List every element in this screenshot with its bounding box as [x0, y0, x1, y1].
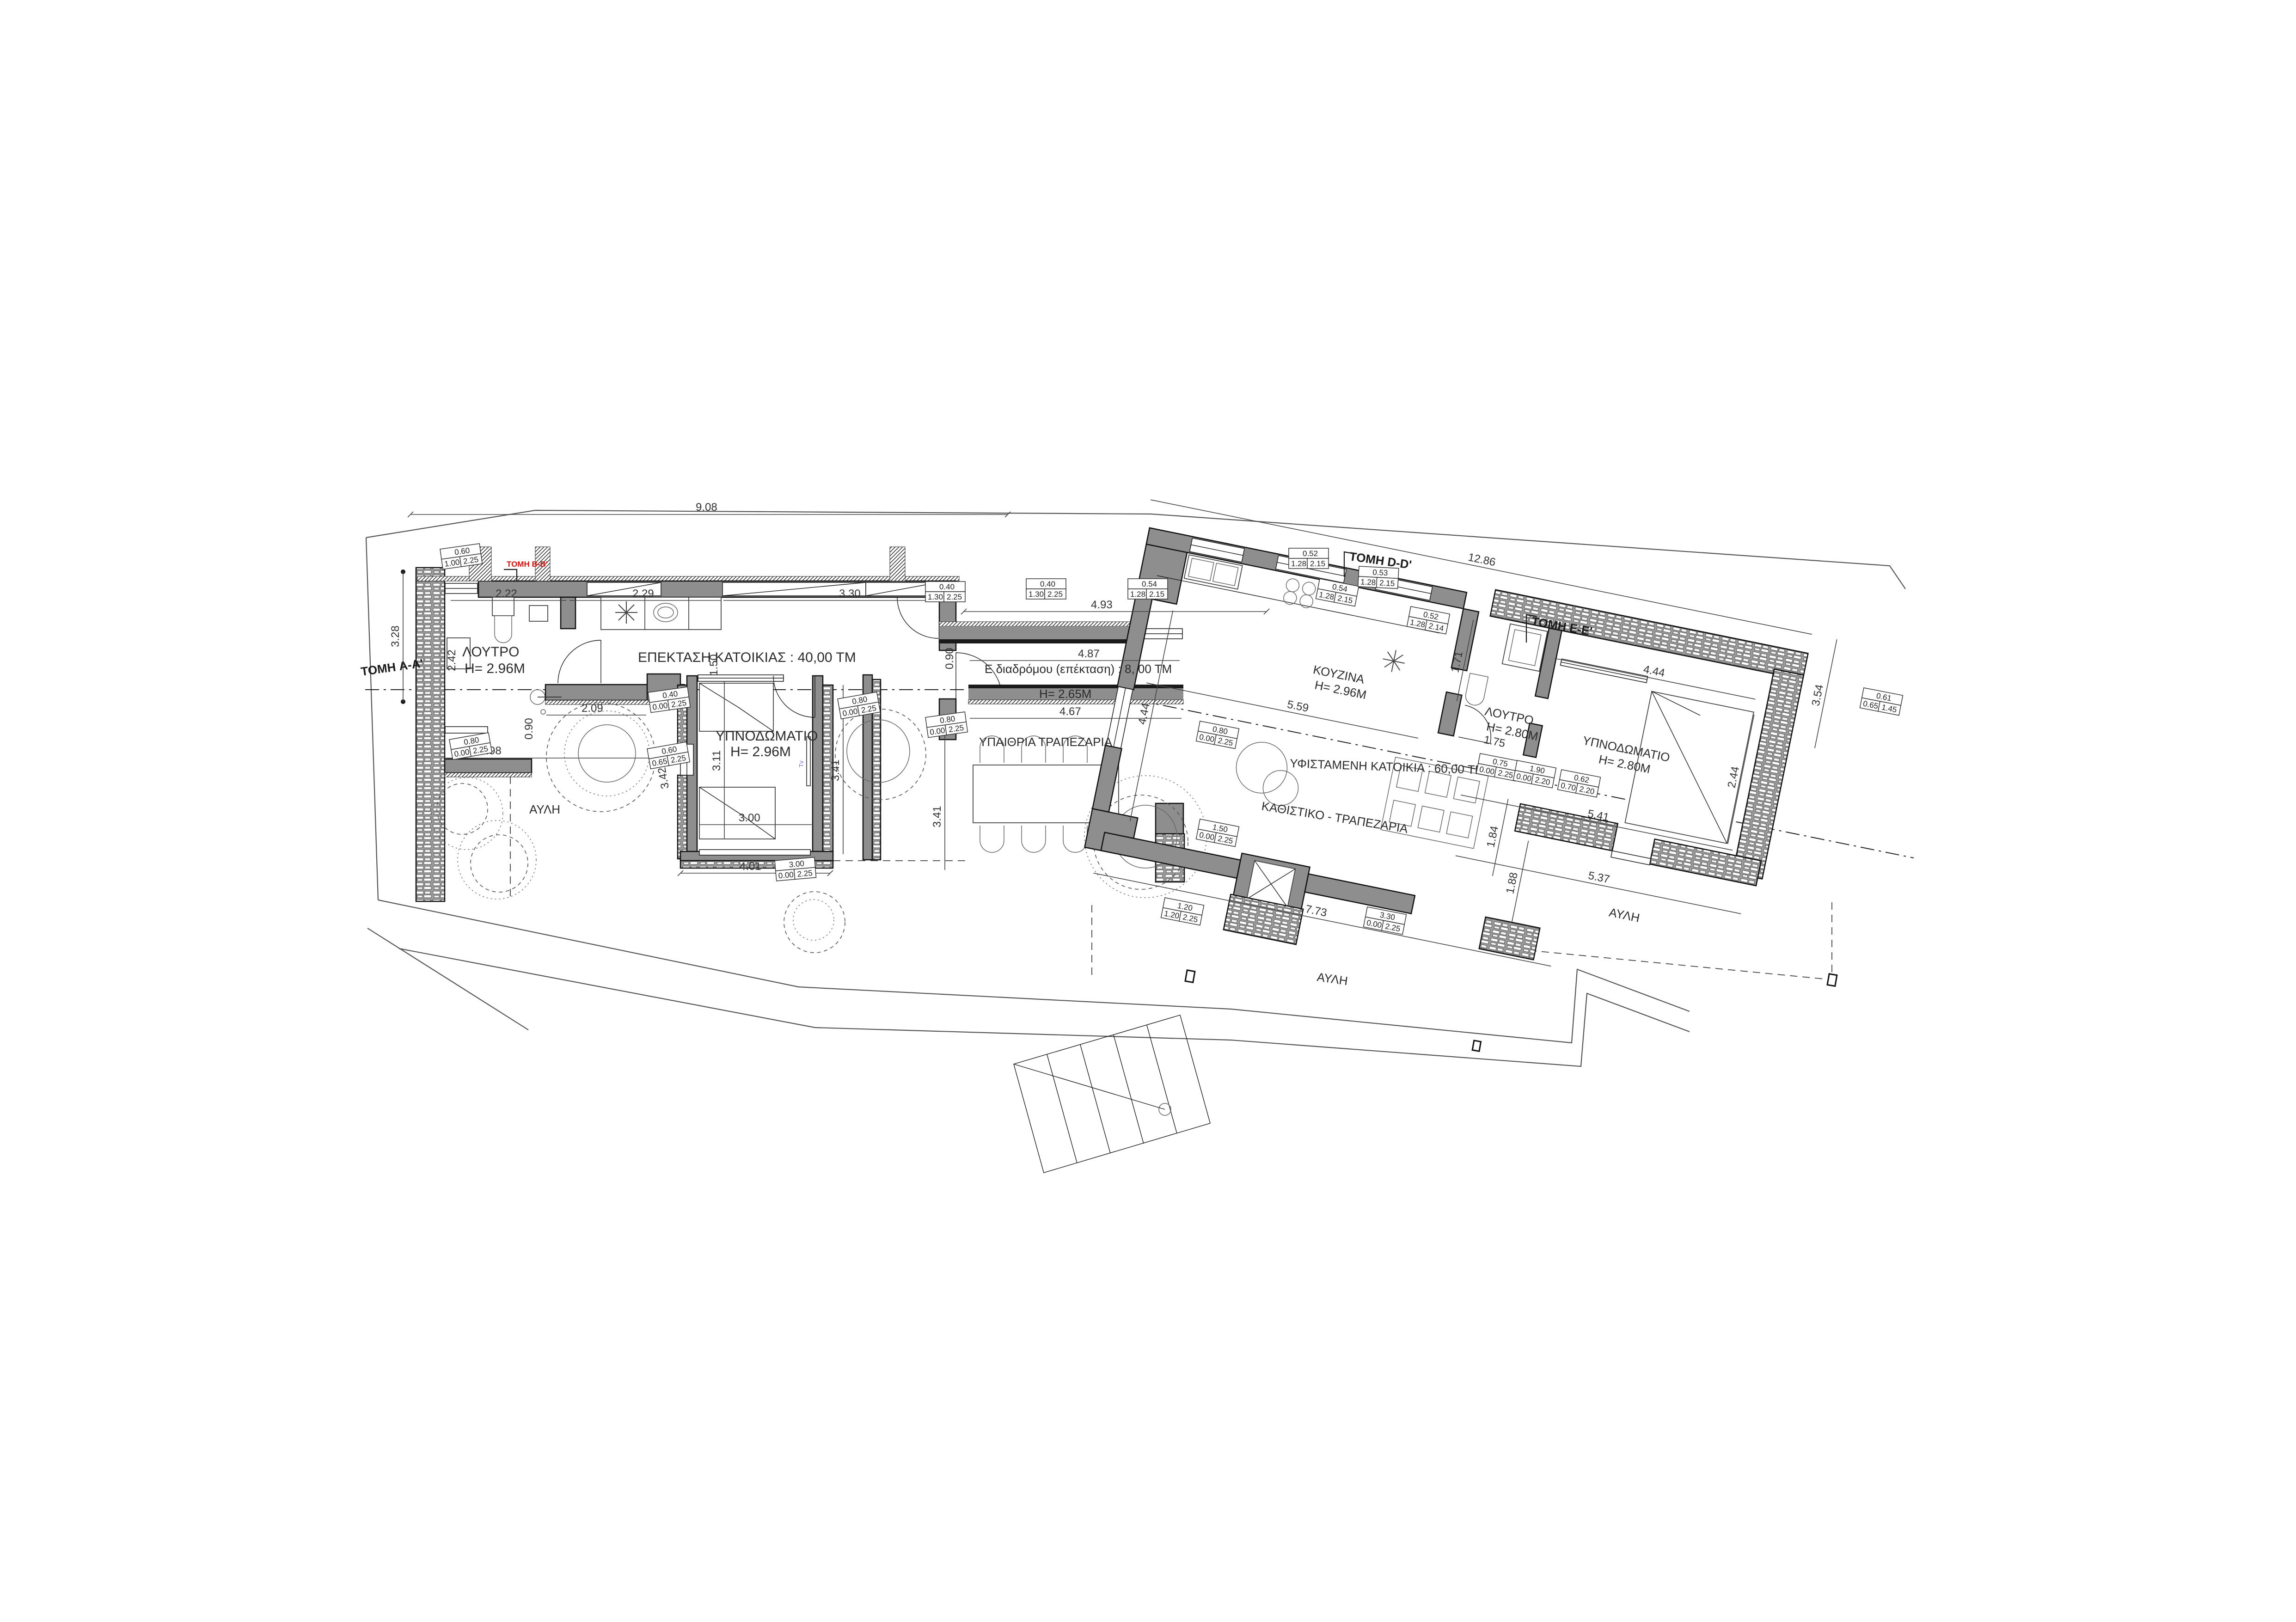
room-loutro-left-h: Η= 2.96Μ	[465, 661, 525, 676]
dim-total-right: 12.86	[1467, 551, 1497, 569]
tag-box: 0.620.702.20	[1558, 770, 1601, 797]
toilet	[492, 597, 514, 643]
svg-text:0.00: 0.00	[778, 870, 794, 881]
tag-box: 1.900.002.20	[1513, 760, 1556, 788]
svg-text:0.52: 0.52	[1303, 549, 1318, 558]
dim-kitchen-w: 2.29	[632, 588, 654, 600]
sofa	[1230, 738, 1306, 809]
svg-text:2.15: 2.15	[1379, 578, 1395, 588]
survey-marker	[1827, 974, 1837, 986]
svg-text:0.40: 0.40	[939, 582, 955, 591]
dim-bath-low: 2.09	[582, 702, 603, 715]
court-wall	[445, 759, 532, 773]
svg-text:1.30: 1.30	[928, 593, 943, 601]
svg-text:1.28: 1.28	[1291, 559, 1306, 568]
pier	[890, 547, 905, 581]
cooktop-icon	[615, 601, 637, 624]
dim-bath-w: 2.22	[496, 588, 517, 600]
room-existing: ΥΦΙΣΤΑΜΕΝΗ ΚΑΤΟΙΚΙΑ : 60,00 ΤΜ	[1290, 756, 1485, 777]
dim-corr-in: 4.87	[1078, 648, 1100, 660]
bedroom-wall-east	[813, 676, 823, 857]
svg-text:3.00: 3.00	[789, 859, 805, 869]
section-bb: ΤΟΜΗ Β-Β'	[507, 560, 548, 569]
chair	[1022, 826, 1046, 852]
tag-box: 0.401.302.25	[925, 581, 965, 602]
dim-side-a: 3.41	[829, 759, 842, 781]
bed	[699, 787, 775, 839]
tv-label: Tv	[798, 760, 805, 767]
dim-bed-l-total: 4.01	[740, 860, 761, 873]
tag-box: 0.401.302.25	[1026, 579, 1066, 599]
dim-bath-d: 2.42	[446, 649, 458, 671]
door-bath	[558, 640, 601, 683]
section-aa: ΤΟΜΗ A-A'	[360, 656, 424, 679]
dim-bed-l-h: 3.11	[710, 750, 723, 771]
tag-box: 0.750.002.25	[1476, 753, 1519, 781]
dim-corr-low: 4.67	[1059, 705, 1081, 718]
room-extension: ΕΠΕΚΤΑΣΗ ΚΑΤΟΙΚΙΑΣ : 40,00 ΤΜ	[638, 650, 856, 665]
tag-box: 0.541.282.15	[1128, 579, 1168, 599]
court-gate-wall	[1156, 803, 1184, 882]
svg-text:1.30: 1.30	[1029, 590, 1044, 599]
door-bedroom	[773, 676, 815, 717]
dim-hall: 1.50	[708, 654, 720, 676]
bed	[699, 683, 773, 731]
svg-text:0.54: 0.54	[1142, 580, 1157, 588]
bath-shelf	[529, 606, 548, 621]
svg-text:2.25: 2.25	[1047, 590, 1063, 599]
room-bedroom-left: ΥΠΝΟΔΩΜΑΤΙΟ	[716, 728, 818, 744]
chair	[980, 826, 1004, 852]
svg-text:0.53: 0.53	[1372, 568, 1388, 578]
dim-court-door: 0.90	[523, 718, 535, 740]
floor-plan-drawing: Tv	[0, 0, 2296, 1622]
room-bedroom-left-h: Η= 2.96Μ	[730, 744, 791, 759]
court-bottom-label: ΑΥΛΗ	[1316, 970, 1348, 988]
boiler-icon	[1381, 648, 1407, 674]
dim-side-b: 3.41	[931, 806, 943, 827]
svg-text:0.40: 0.40	[1040, 580, 1055, 588]
shower	[1502, 624, 1548, 672]
wall-bath-partition	[561, 597, 576, 629]
room-outdoor-dining: ΥΠΑΙΘΡΙΑ ΤΡΑΠΕΖΑΡΙΑ	[979, 735, 1113, 749]
dim-top: 9.08	[696, 501, 717, 514]
dim-left-h: 3.28	[389, 625, 402, 647]
tag-box: 0.531.282.15	[1358, 566, 1399, 588]
tag-box: 0.610.651.45	[1860, 688, 1903, 716]
survey-marker	[1185, 970, 1195, 983]
tag-box: 0.800.002.25	[925, 712, 967, 738]
dim-side-c: 3.42	[655, 766, 672, 790]
chair	[1063, 826, 1087, 852]
tag-box: 1.500.002.25	[1196, 819, 1239, 847]
tag-box: 0.521.282.14	[1407, 606, 1450, 634]
tag-box: 0.800.002.25	[1196, 721, 1239, 749]
svg-text:1.28: 1.28	[1360, 577, 1376, 587]
tag-box: 3.000.002.25	[775, 857, 816, 881]
tag-box: 0.521.282.15	[1289, 548, 1329, 569]
tv-unit	[807, 737, 810, 786]
room-loutro-left: ΛΟΥΤΡΟ	[462, 644, 519, 660]
room-corridor: Ε διαδρόμου (επέκταση) : 8, 00 ΤΜ	[985, 662, 1172, 676]
stone-wall-east-r	[1733, 669, 1803, 879]
survey-marker	[1472, 1041, 1481, 1051]
svg-text:1.28: 1.28	[1130, 590, 1145, 599]
dim-corr-top: 4.93	[1091, 599, 1113, 611]
dim-bed-l-w: 3.00	[739, 812, 760, 824]
svg-text:2.15: 2.15	[1310, 559, 1325, 568]
floor-plan-page: { "accent_colors": {"wall_gray": "#8e8e8…	[0, 0, 2296, 1622]
room-living: ΚΑΘΙΣΤΙΚΟ - ΤΡΑΠΕΖΑΡΙΑ	[1261, 799, 1409, 836]
kitchen-counter	[601, 597, 721, 630]
svg-text:2.15: 2.15	[1149, 590, 1164, 599]
svg-text:2.25: 2.25	[947, 593, 962, 601]
toilet	[1464, 673, 1488, 707]
tag-box: 1.201.202.25	[1161, 898, 1204, 925]
dim-wardrobe-w: 3.30	[839, 588, 861, 600]
door-hall-north	[897, 597, 938, 638]
court-right-label: ΑΥΛΗ	[1608, 905, 1641, 925]
stone-wall-west	[416, 568, 445, 901]
room-corridor-h: Η= 2.65Μ	[1039, 687, 1091, 701]
court-left-label: ΑΥΛΗ	[529, 802, 560, 816]
svg-text:2.25: 2.25	[797, 869, 813, 879]
dim-corr-door: 0.90	[943, 648, 956, 669]
